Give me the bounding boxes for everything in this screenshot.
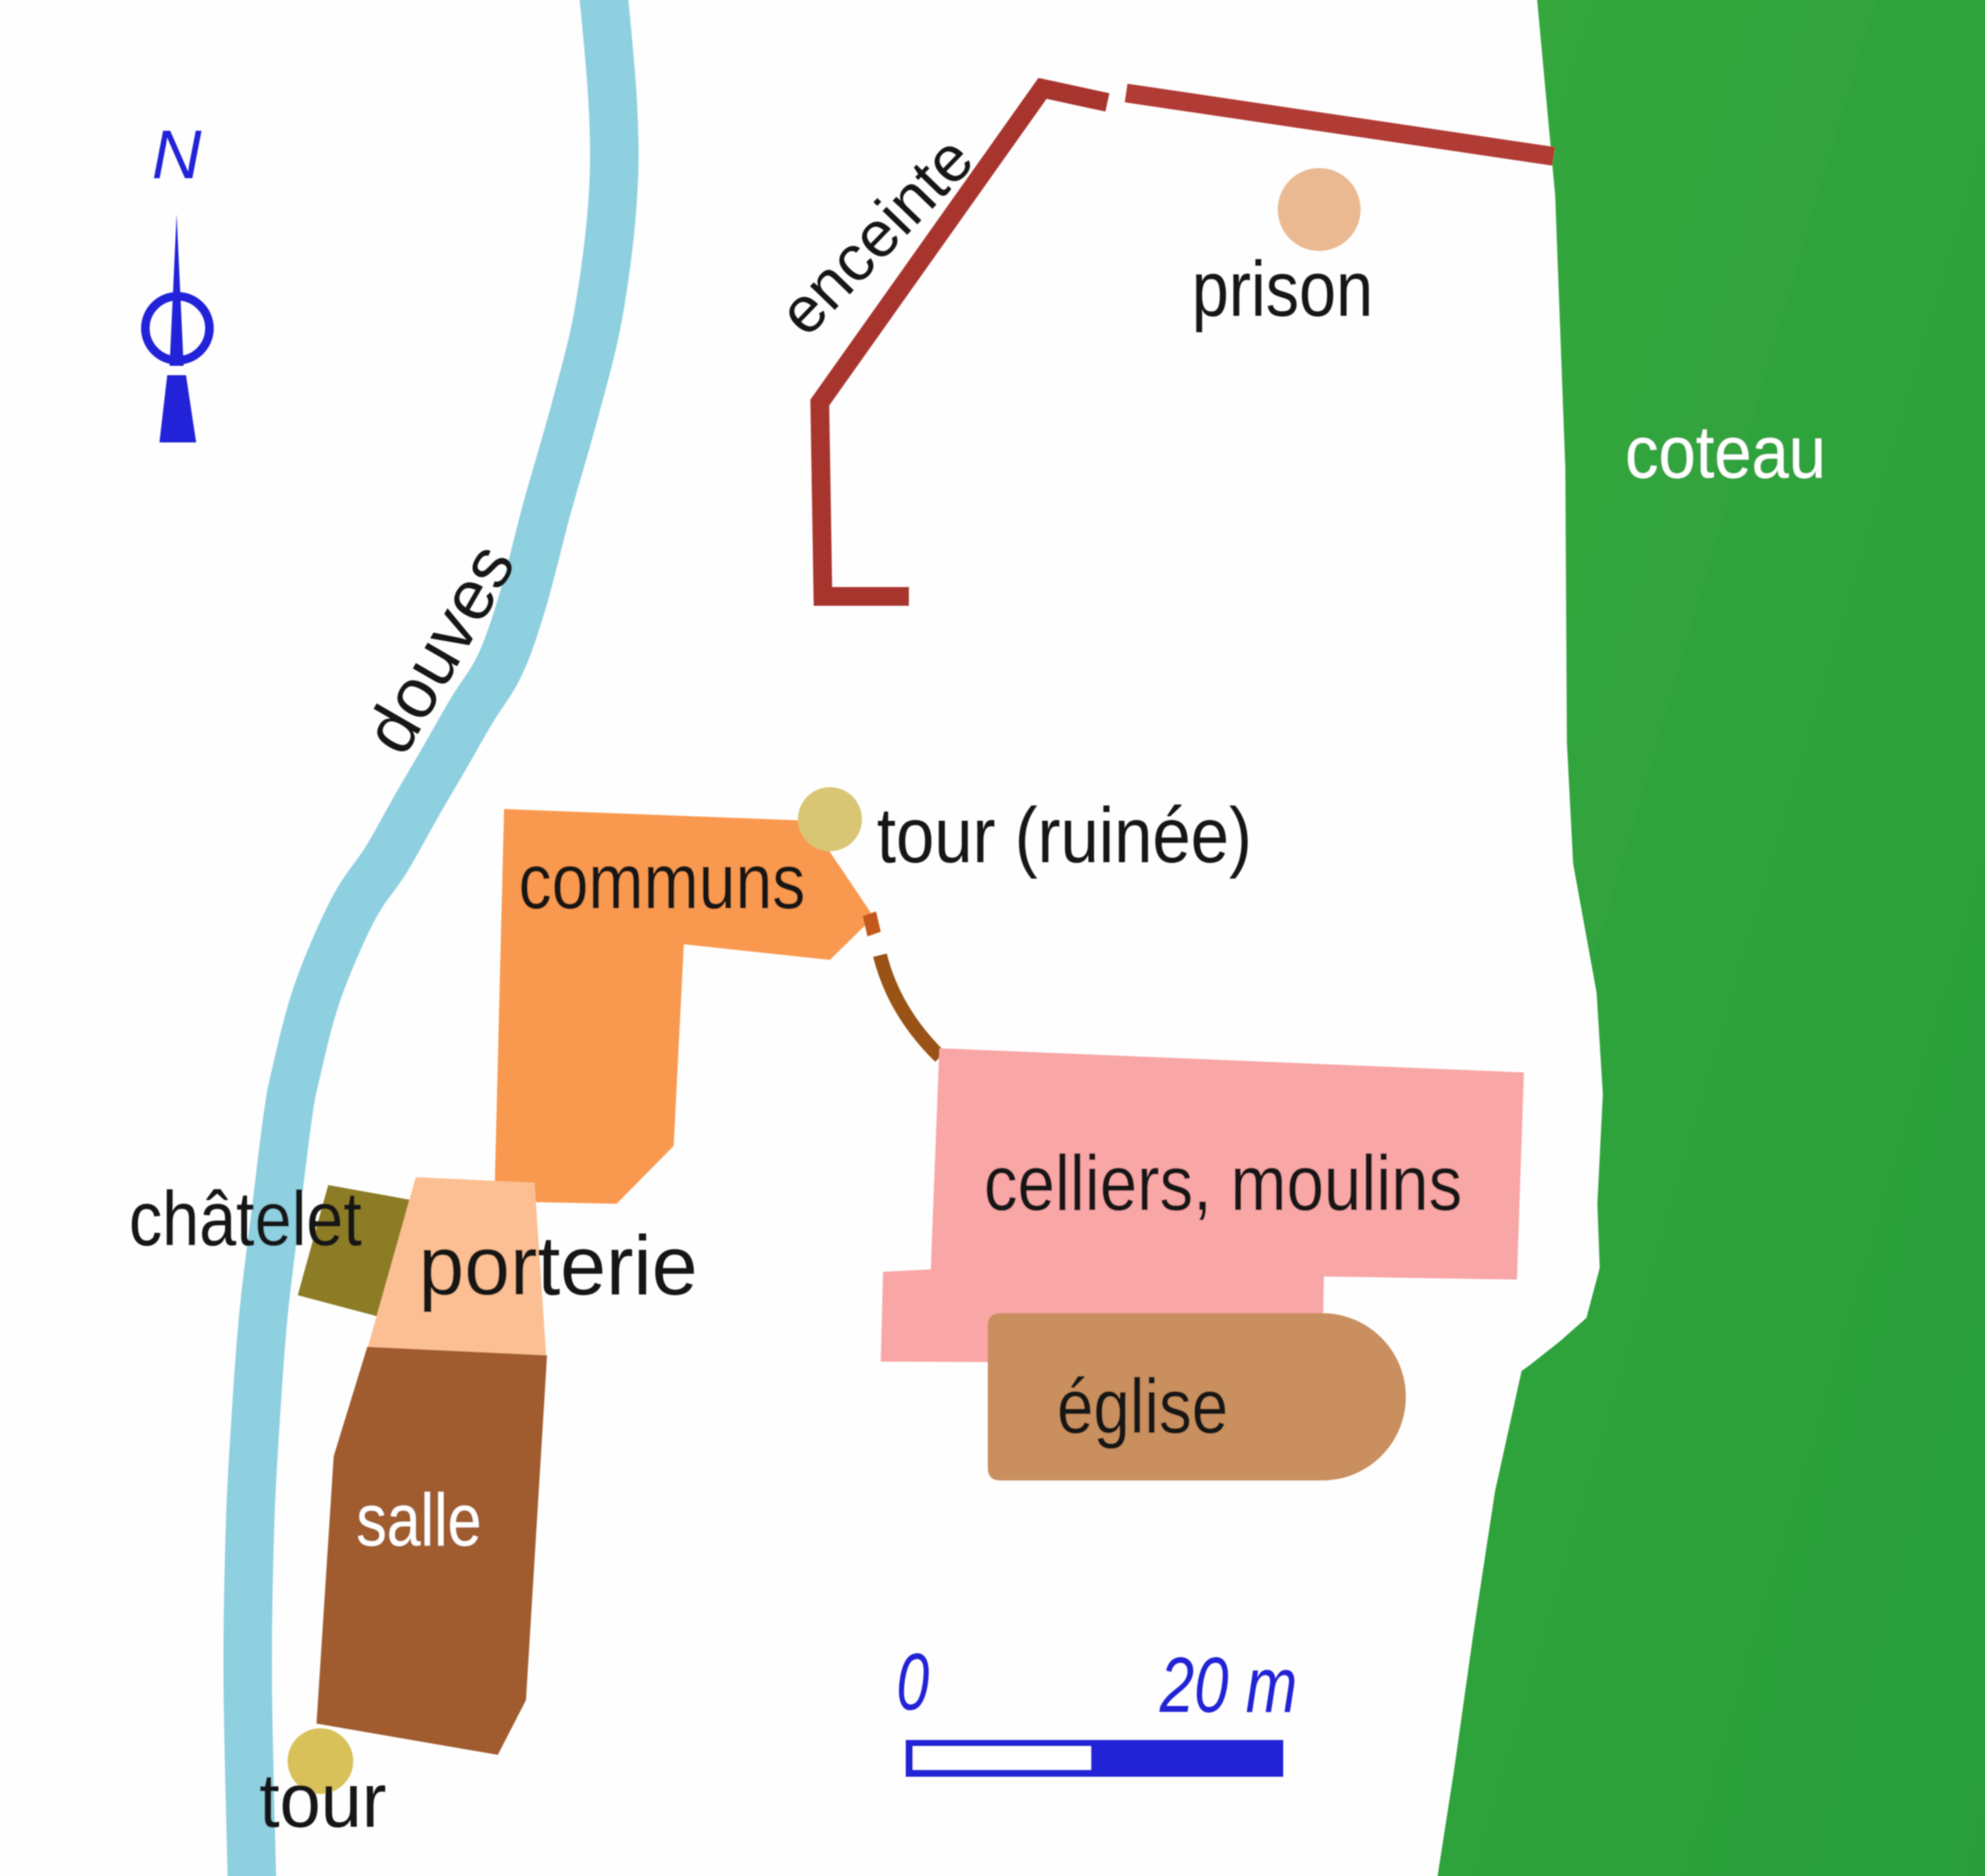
svg-text:prison: prison: [1192, 245, 1373, 333]
svg-text:salle: salle: [356, 1479, 481, 1562]
svg-text:tour: tour: [259, 1757, 387, 1843]
svg-text:tour (ruinée): tour (ruinée): [877, 792, 1252, 879]
svg-text:église: église: [1057, 1363, 1229, 1449]
svg-text:coteau: coteau: [1626, 411, 1826, 494]
svg-text:communs: communs: [519, 838, 806, 925]
svg-text:N: N: [152, 116, 202, 193]
svg-text:20 m: 20 m: [1159, 1641, 1297, 1729]
svg-text:celliers, moulins: celliers, moulins: [984, 1140, 1462, 1227]
svg-text:châtelet: châtelet: [129, 1176, 362, 1262]
svg-text:porterie: porterie: [419, 1218, 698, 1312]
svg-text:0: 0: [896, 1637, 929, 1727]
